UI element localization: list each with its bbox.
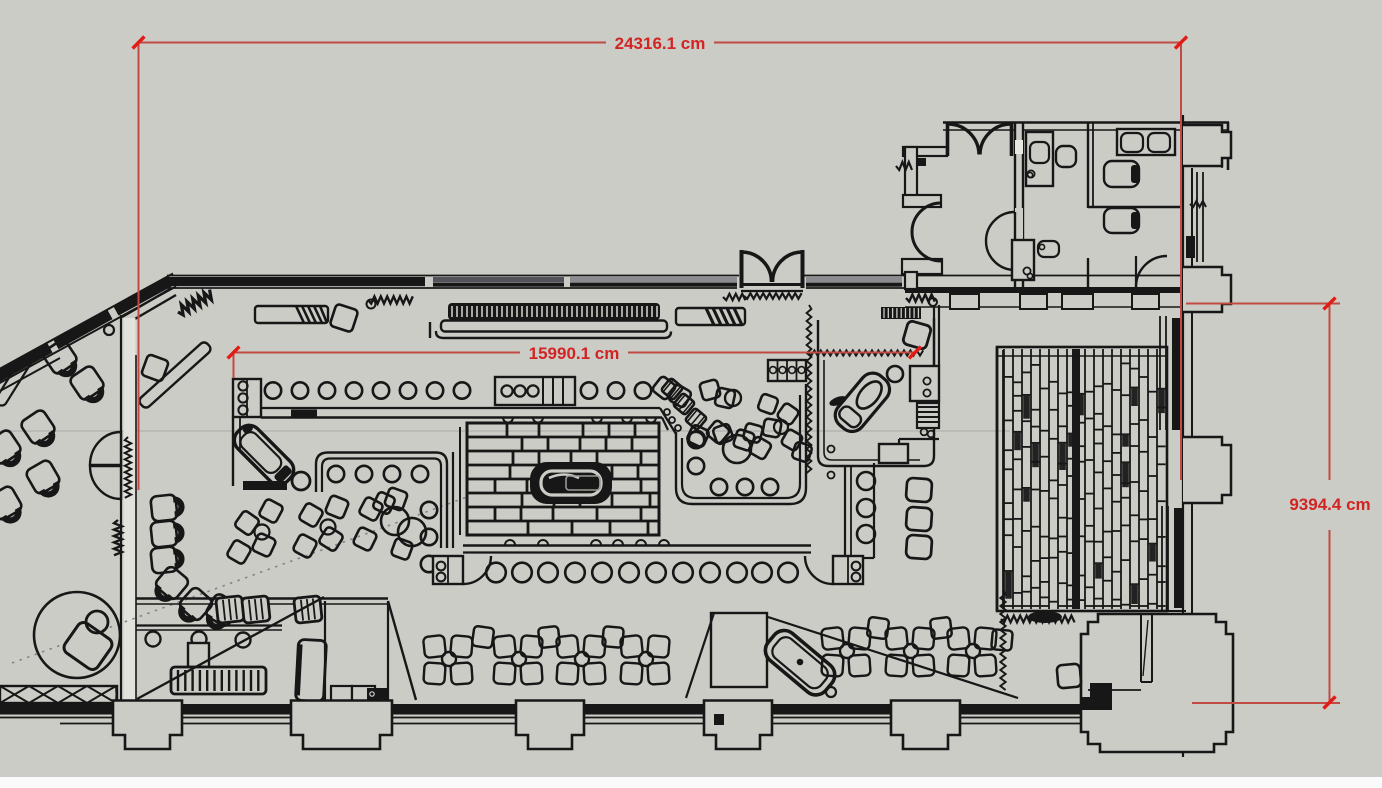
svg-text:15990.1 cm: 15990.1 cm bbox=[529, 344, 620, 363]
svg-text:24316.1 cm: 24316.1 cm bbox=[615, 34, 706, 53]
svg-text:9394.4 cm: 9394.4 cm bbox=[1289, 495, 1370, 514]
